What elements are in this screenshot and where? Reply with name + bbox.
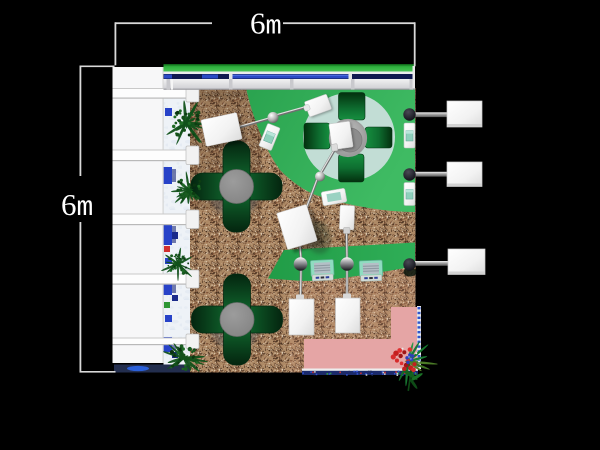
svg-text:6m: 6m [61, 187, 93, 224]
